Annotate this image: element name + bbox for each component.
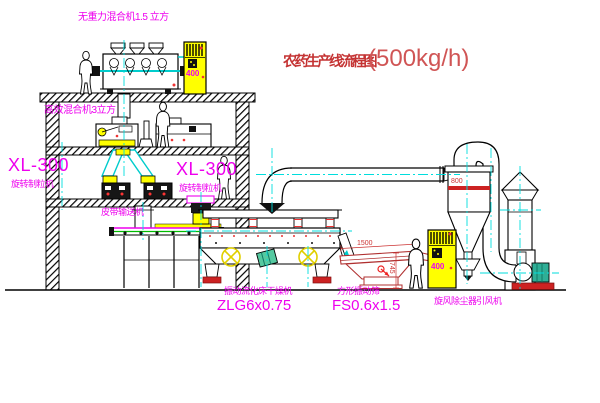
sieve-height-dim: 745: [388, 262, 395, 274]
cyclone-label: 旋风除尘器: [434, 297, 477, 306]
dryer-model-label: ZLG6x0.75: [217, 298, 291, 313]
mixer-3m3: [96, 117, 138, 147]
belt-conveyor-label: 皮带输送机: [101, 208, 144, 217]
agitator-unit: [139, 121, 153, 147]
person-figure: [80, 51, 93, 94]
fluid-bed-dryer: [198, 210, 352, 283]
exhaust-duct: [259, 166, 455, 214]
fan-label: 引风机: [476, 297, 502, 306]
cyclone-diameter-dim: 800: [451, 178, 463, 185]
diagram-title: 农药生产线流程图: [283, 54, 375, 68]
sieve-name-label: 方形振动筛: [337, 287, 380, 296]
granulator-left-model: XL-300: [8, 156, 69, 174]
diagram-canvas: 无重力混合机1.5 立方 农药生产线流程图 (500kg/h) 高效混合机3立方…: [0, 0, 600, 403]
sieve-model-label: FS0.6x1.5: [332, 298, 400, 313]
sieve-length-dim: 1500: [357, 240, 373, 247]
granulator-mid-name: 旋转制粒机: [179, 184, 222, 193]
gravity-mixer-label: 无重力混合机1.5 立方: [78, 13, 169, 23]
control-cabinet-lower: [428, 230, 456, 288]
cabinet-upper-text: 400: [186, 70, 199, 78]
rotary-granulator-right: [144, 183, 172, 199]
gravity-free-mixer: [89, 43, 192, 94]
diagram-title-capacity: (500kg/h): [368, 47, 469, 71]
granulator-mid-model: XL-300: [176, 160, 237, 178]
control-cabinet-upper: [184, 42, 206, 94]
person-figure: [409, 239, 424, 288]
dryer-name-label: 振动流化床干燥机: [224, 287, 292, 296]
cabinet-lower-text: 400: [431, 263, 444, 271]
rotary-granulator-left: [102, 183, 130, 199]
granulator-left-name: 旋转制粒机: [11, 180, 54, 189]
mixer-3m3-label: 高效混合机3立方: [44, 106, 116, 116]
